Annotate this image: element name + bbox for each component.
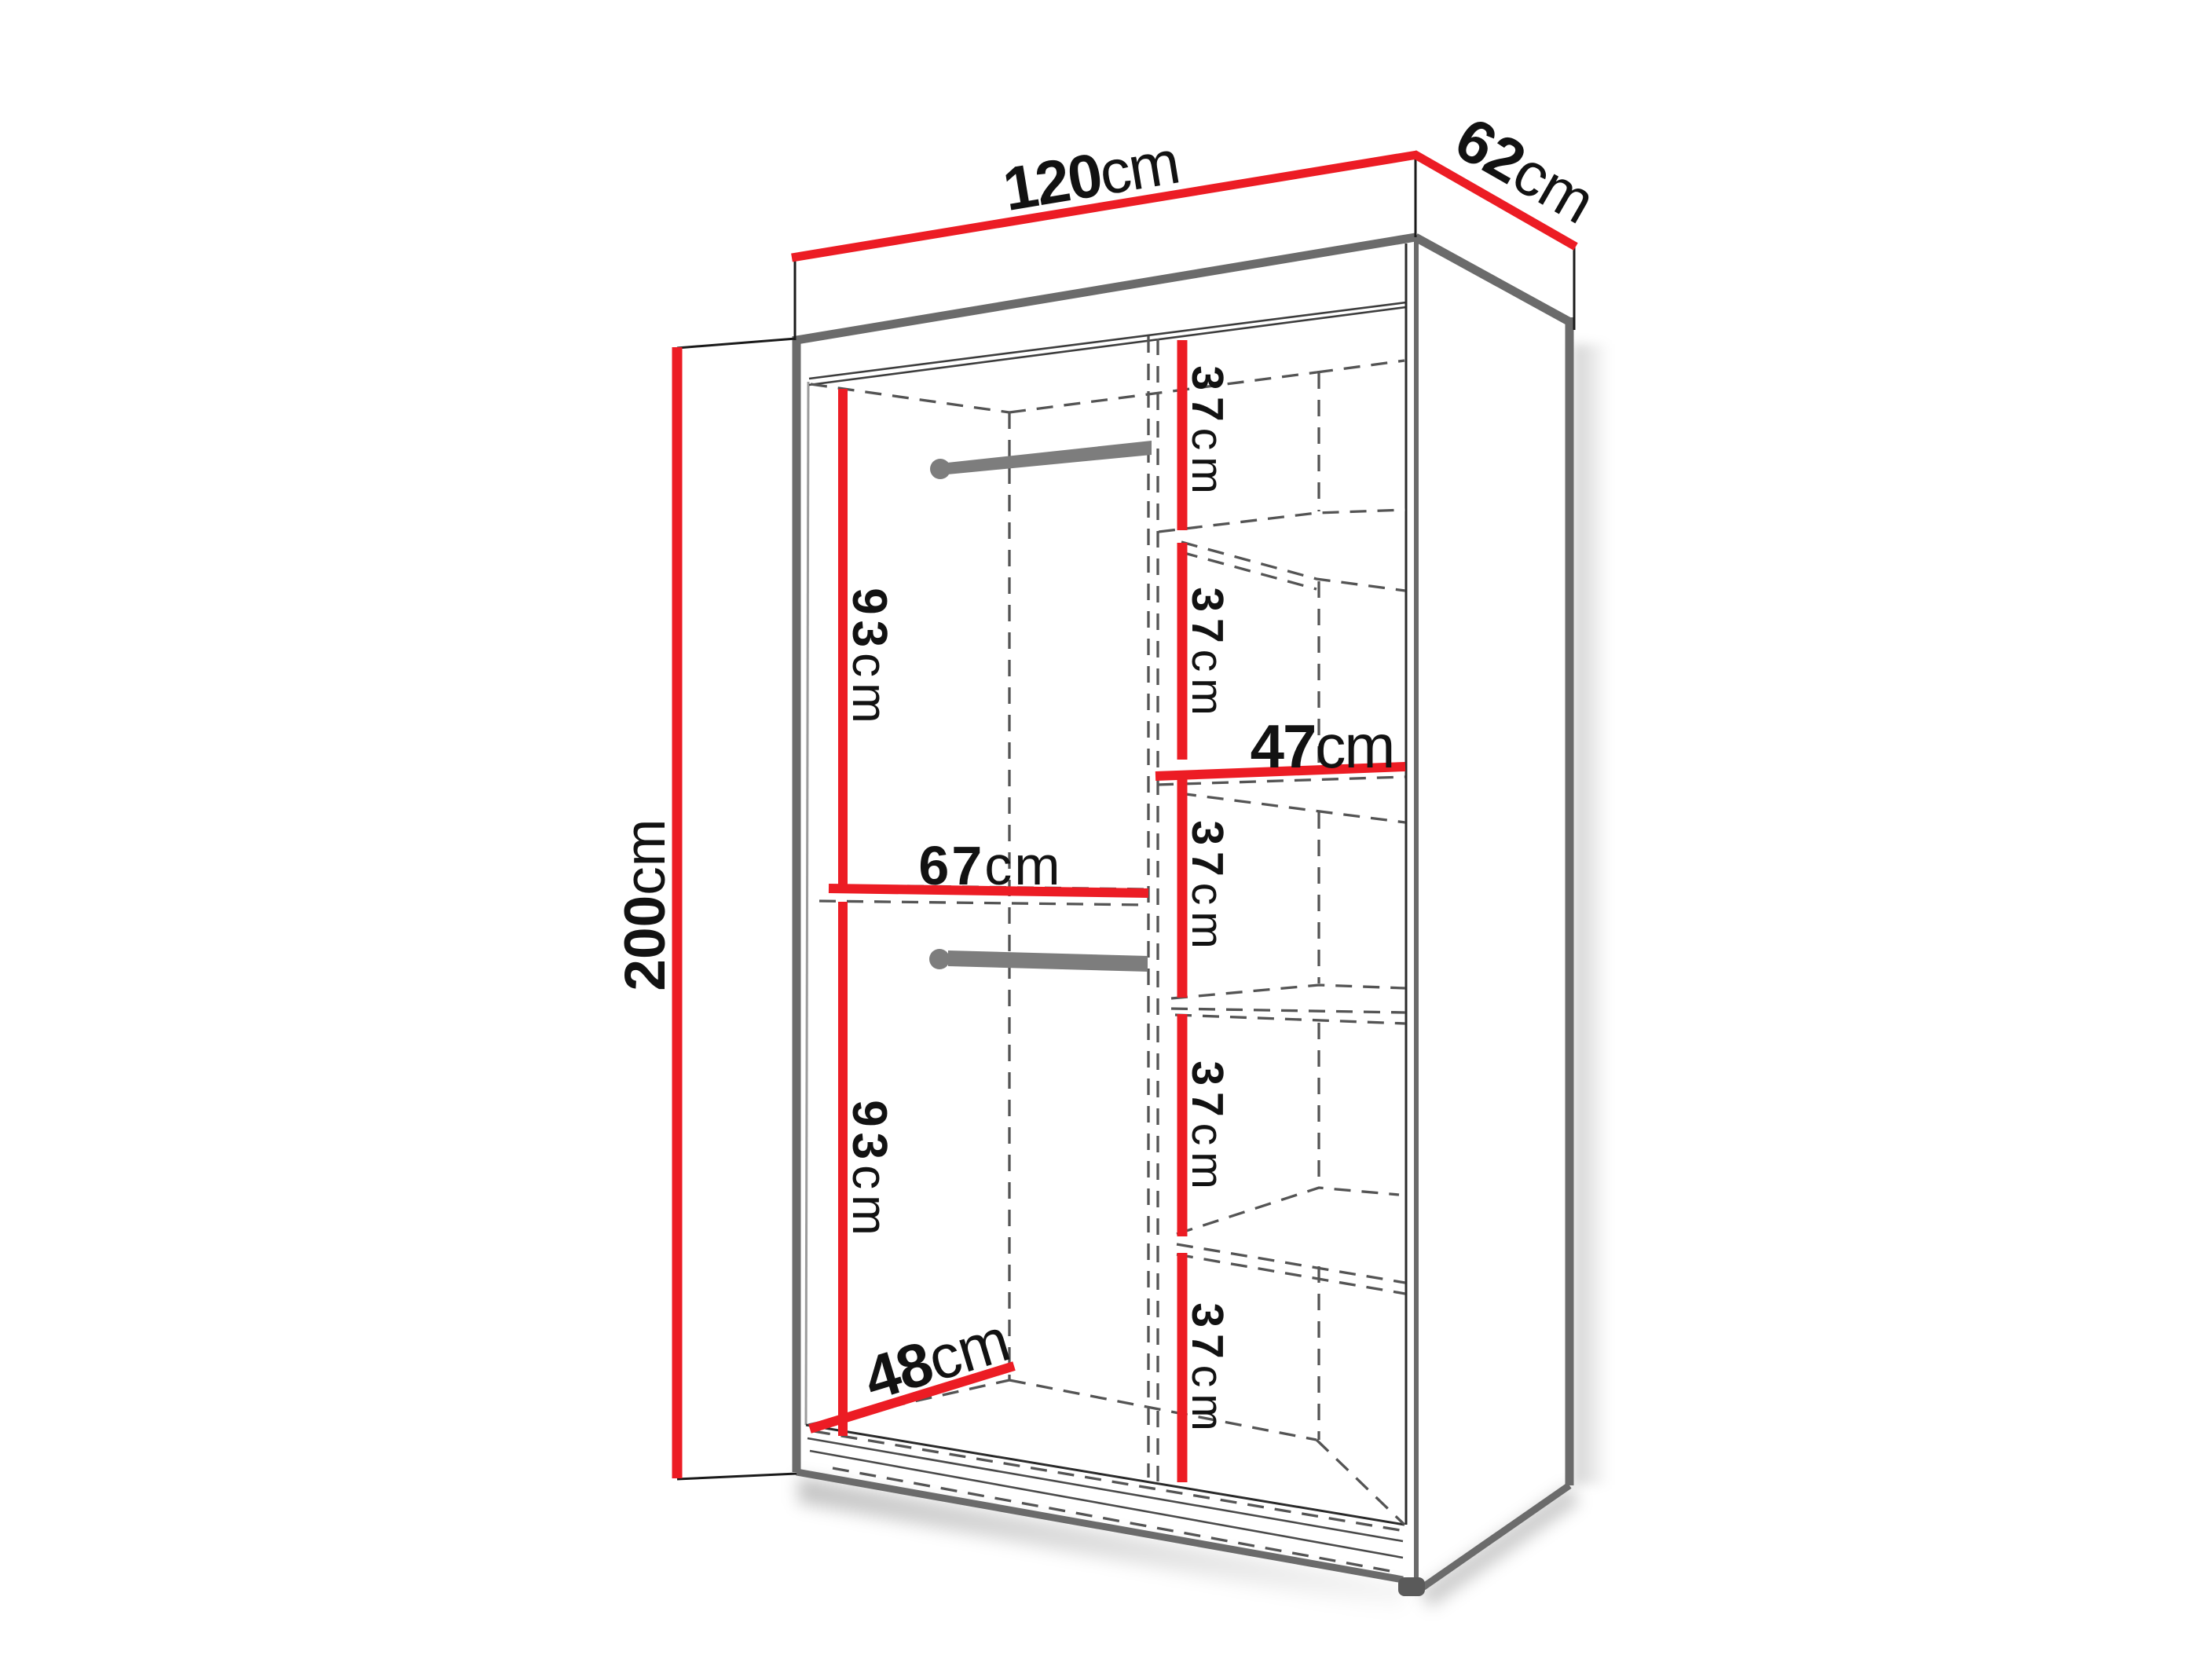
svg-text:37cm: 37cm xyxy=(1182,1302,1232,1437)
svg-text:37cm: 37cm xyxy=(1182,365,1232,500)
svg-text:67cm: 67cm xyxy=(918,835,1062,896)
svg-text:93cm: 93cm xyxy=(842,1100,896,1241)
svg-text:37cm: 37cm xyxy=(1182,1060,1232,1195)
svg-text:37cm: 37cm xyxy=(1182,587,1232,721)
svg-text:200cm: 200cm xyxy=(613,819,677,991)
svg-text:37cm: 37cm xyxy=(1182,820,1232,954)
svg-text:47cm: 47cm xyxy=(1251,712,1394,781)
svg-text:93cm: 93cm xyxy=(842,588,896,729)
